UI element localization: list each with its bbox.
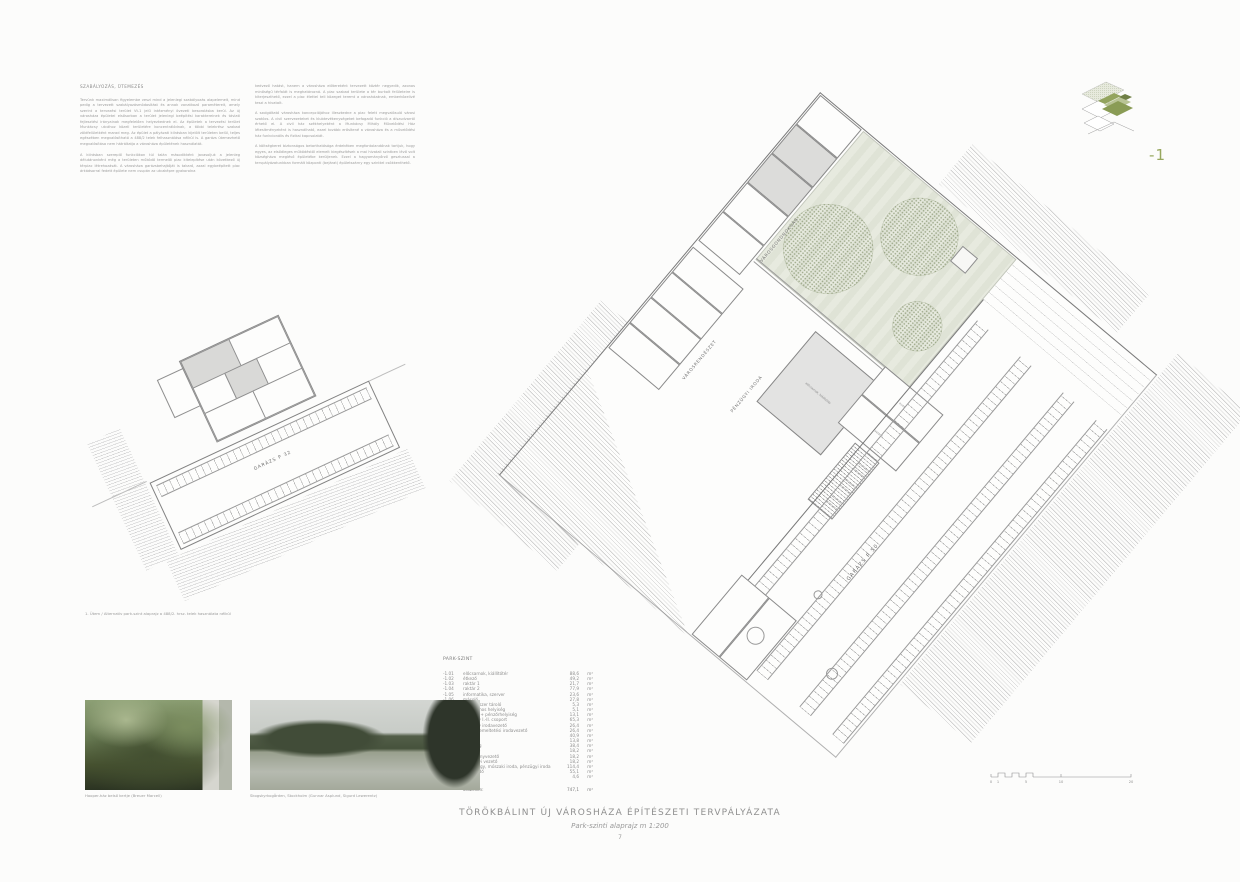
intro-column-2: kedvező hatást, hanem a városháza előter… bbox=[255, 84, 415, 171]
intro-column-1: SZABÁLYOZÁS, ÜTEMEZÉS Tervünk maximálisa… bbox=[80, 84, 240, 180]
graphic-scale-bar: 0 1 5 10 20 bbox=[990, 768, 1145, 788]
svg-text:10: 10 bbox=[1059, 780, 1064, 784]
title-block: TÖRÖKBÁLINT ÚJ VÁROSHÁZA ÉPÍTÉSZETI TERV… bbox=[0, 808, 1240, 841]
scale-bar-icon: 0 1 5 10 20 bbox=[990, 768, 1145, 788]
svg-text:20: 20 bbox=[1129, 780, 1134, 784]
rotated-alt-plan-group: GARÁZS P 32 bbox=[106, 289, 423, 590]
photo-caption: Skogskyrkogården, Stockholm (Gunnar Aspl… bbox=[250, 793, 377, 798]
sheet-title: TÖRÖKBÁLINT ÚJ VÁROSHÁZA ÉPÍTÉSZETI TERV… bbox=[0, 808, 1240, 818]
total-area: 747,1 bbox=[557, 787, 579, 792]
intro-paragraph: A költségkeret biztonságos betarthatóság… bbox=[255, 144, 415, 166]
reference-photo-skogskyrkogarden bbox=[250, 700, 480, 790]
svg-text:5: 5 bbox=[1025, 780, 1027, 784]
entrance-hall-label: előcsarnok, kiállítótér bbox=[804, 381, 831, 405]
reference-photo-hooper-house bbox=[85, 700, 232, 790]
intro-heading: SZABÁLYOZÁS, ÜTEMEZÉS bbox=[80, 84, 240, 91]
svg-text:0: 0 bbox=[990, 780, 993, 784]
competition-board-sheet: SZABÁLYOZÁS, ÜTEMEZÉS Tervünk maximálisa… bbox=[0, 0, 1240, 882]
legend-heading: PARK-SZINT bbox=[443, 657, 593, 662]
spiral-stair bbox=[743, 623, 768, 648]
rotated-plan-group: VÁROSGONDNOKSÁG VÁROSRENDÉSZET PÉNZÜGYI … bbox=[499, 92, 1157, 758]
sheet-subtitle: Park-szinti alaprajz m 1:200 bbox=[0, 822, 1240, 830]
photo-caption: Hooper-ház belső kertje (Breuer Marcell) bbox=[85, 793, 162, 798]
alt-plan-caption: 1. Ütem / Alternatív park-szint alaprajz… bbox=[85, 611, 375, 616]
intro-paragraph: A kiírásban szereplő funkciókon túl talá… bbox=[80, 153, 240, 175]
intro-col2-paragraphs: kedvező hatást, hanem a városháza előter… bbox=[255, 84, 415, 166]
intro-col1-paragraphs: Tervünk maximálisan figyelembe veszi min… bbox=[80, 98, 240, 175]
intro-paragraph: kedvező hatást, hanem a városháza előter… bbox=[255, 84, 415, 106]
alternative-plan: GARÁZS P 32 bbox=[110, 320, 430, 590]
boundary-line bbox=[367, 364, 405, 382]
intro-paragraph: A szolgáltató városháza koncepciójához i… bbox=[255, 111, 415, 139]
svg-text:1: 1 bbox=[997, 780, 999, 784]
page-number: 7 bbox=[0, 834, 1240, 841]
intro-paragraph: Tervünk maximálisan figyelembe veszi min… bbox=[80, 98, 240, 148]
total-unit: m² bbox=[579, 787, 593, 792]
